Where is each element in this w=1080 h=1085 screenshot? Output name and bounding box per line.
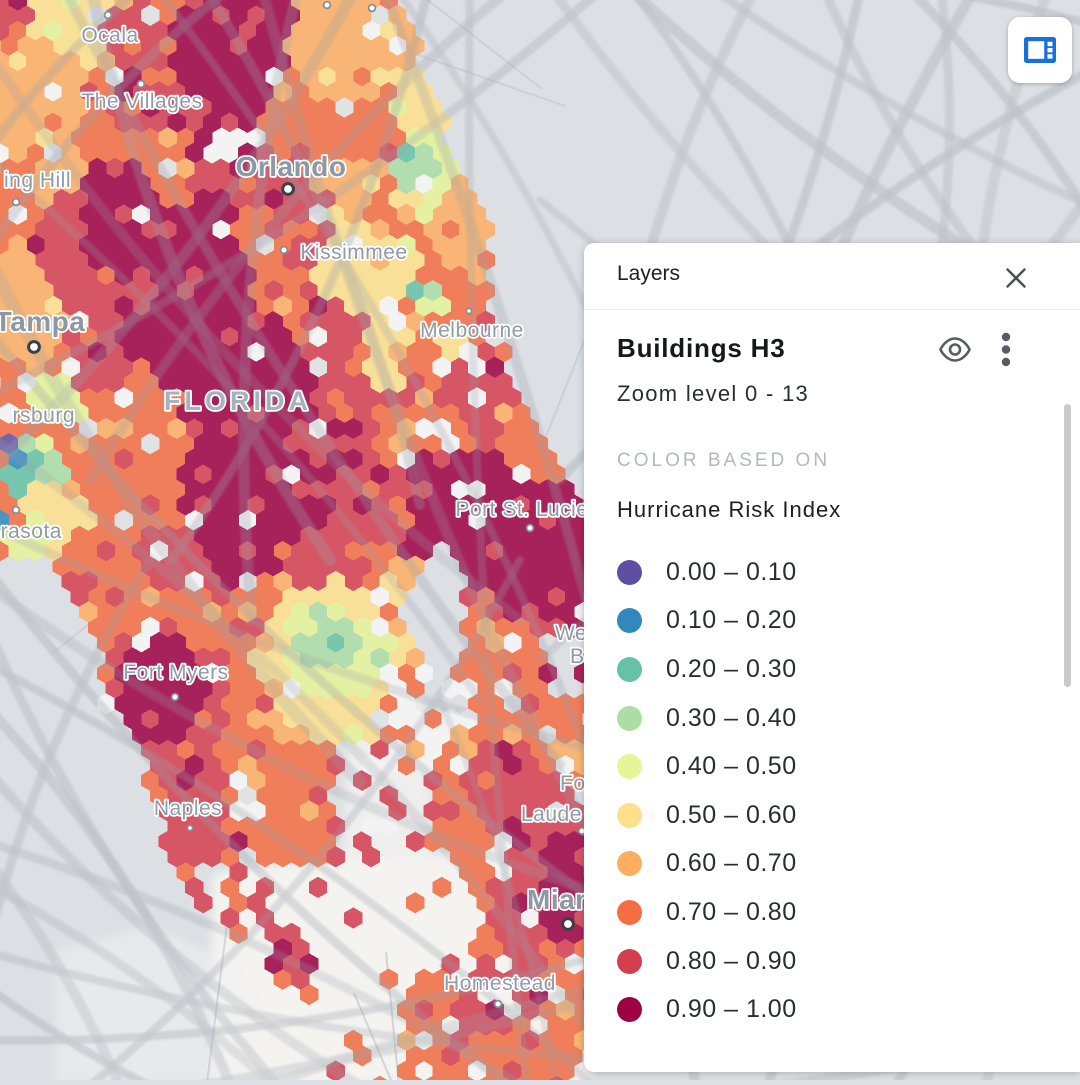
svg-text:Port St. Lucie: Port St. Lucie [455,498,588,521]
svg-text:FLORIDA: FLORIDA [164,386,312,416]
svg-text:Orlando: Orlando [236,151,347,182]
svg-text:Melbourne: Melbourne [420,319,524,342]
svg-text:The Villages: The Villages [81,90,202,113]
svg-text:Ocala: Ocala [81,24,138,47]
svg-text:Fo: Fo [560,772,586,795]
svg-text:ing Hill: ing Hill [4,169,71,192]
svg-text:Homestead: Homestead [444,972,556,995]
svg-text:Kissimmee: Kissimmee [300,241,407,264]
svg-text:Tampa: Tampa [0,306,85,337]
svg-text:Naples: Naples [154,797,222,820]
svg-text:rasota: rasota [1,520,62,543]
svg-text:B: B [570,645,585,668]
svg-text:Laude: Laude [521,803,582,826]
svg-text:rsburg: rsburg [12,404,75,427]
svg-text:Fort Myers: Fort Myers [123,661,228,684]
